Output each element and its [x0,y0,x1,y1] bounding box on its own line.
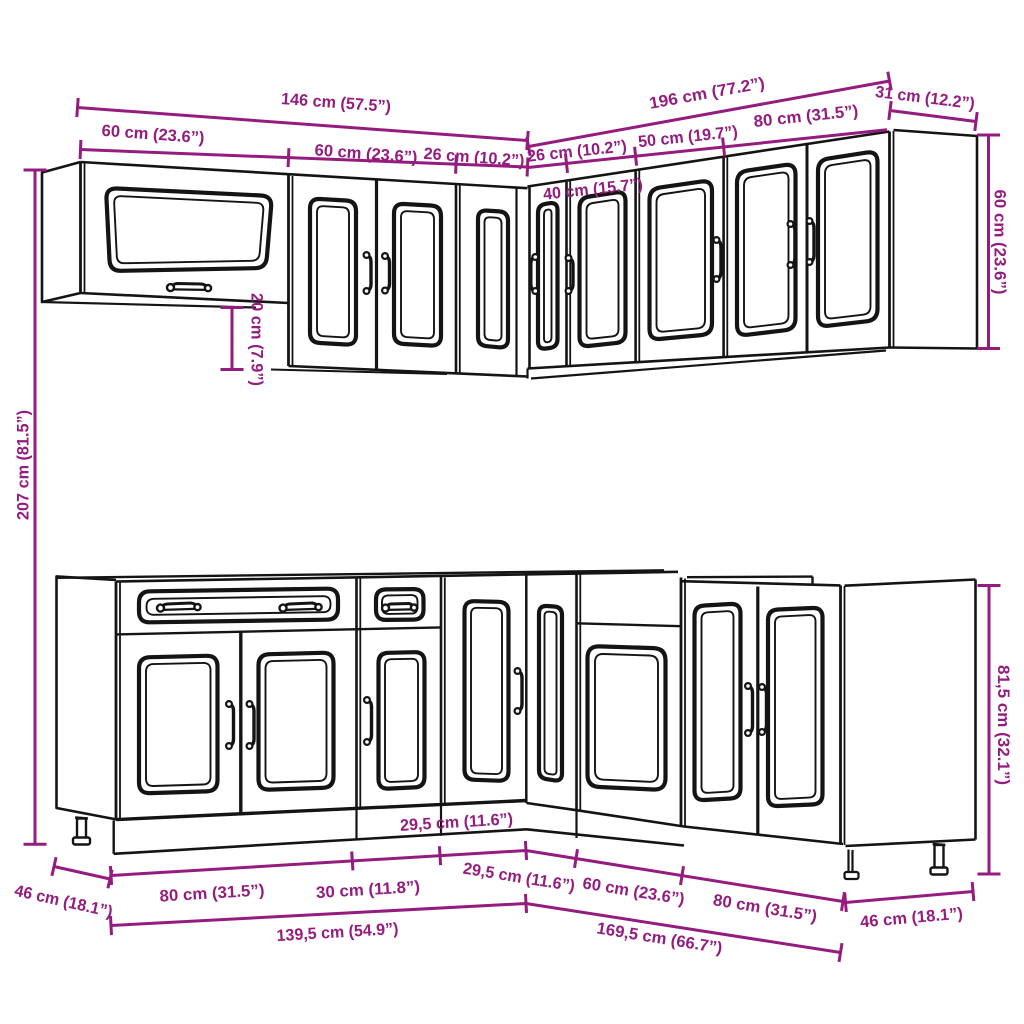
svg-text:20 cm (7.9”): 20 cm (7.9”) [248,293,266,386]
svg-text:81,5 cm (32.1”): 81,5 cm (32.1”) [994,665,1012,785]
svg-text:207 cm (81.5”): 207 cm (81.5”) [15,410,33,520]
svg-text:60 cm (23.6”): 60 cm (23.6”) [991,190,1009,295]
